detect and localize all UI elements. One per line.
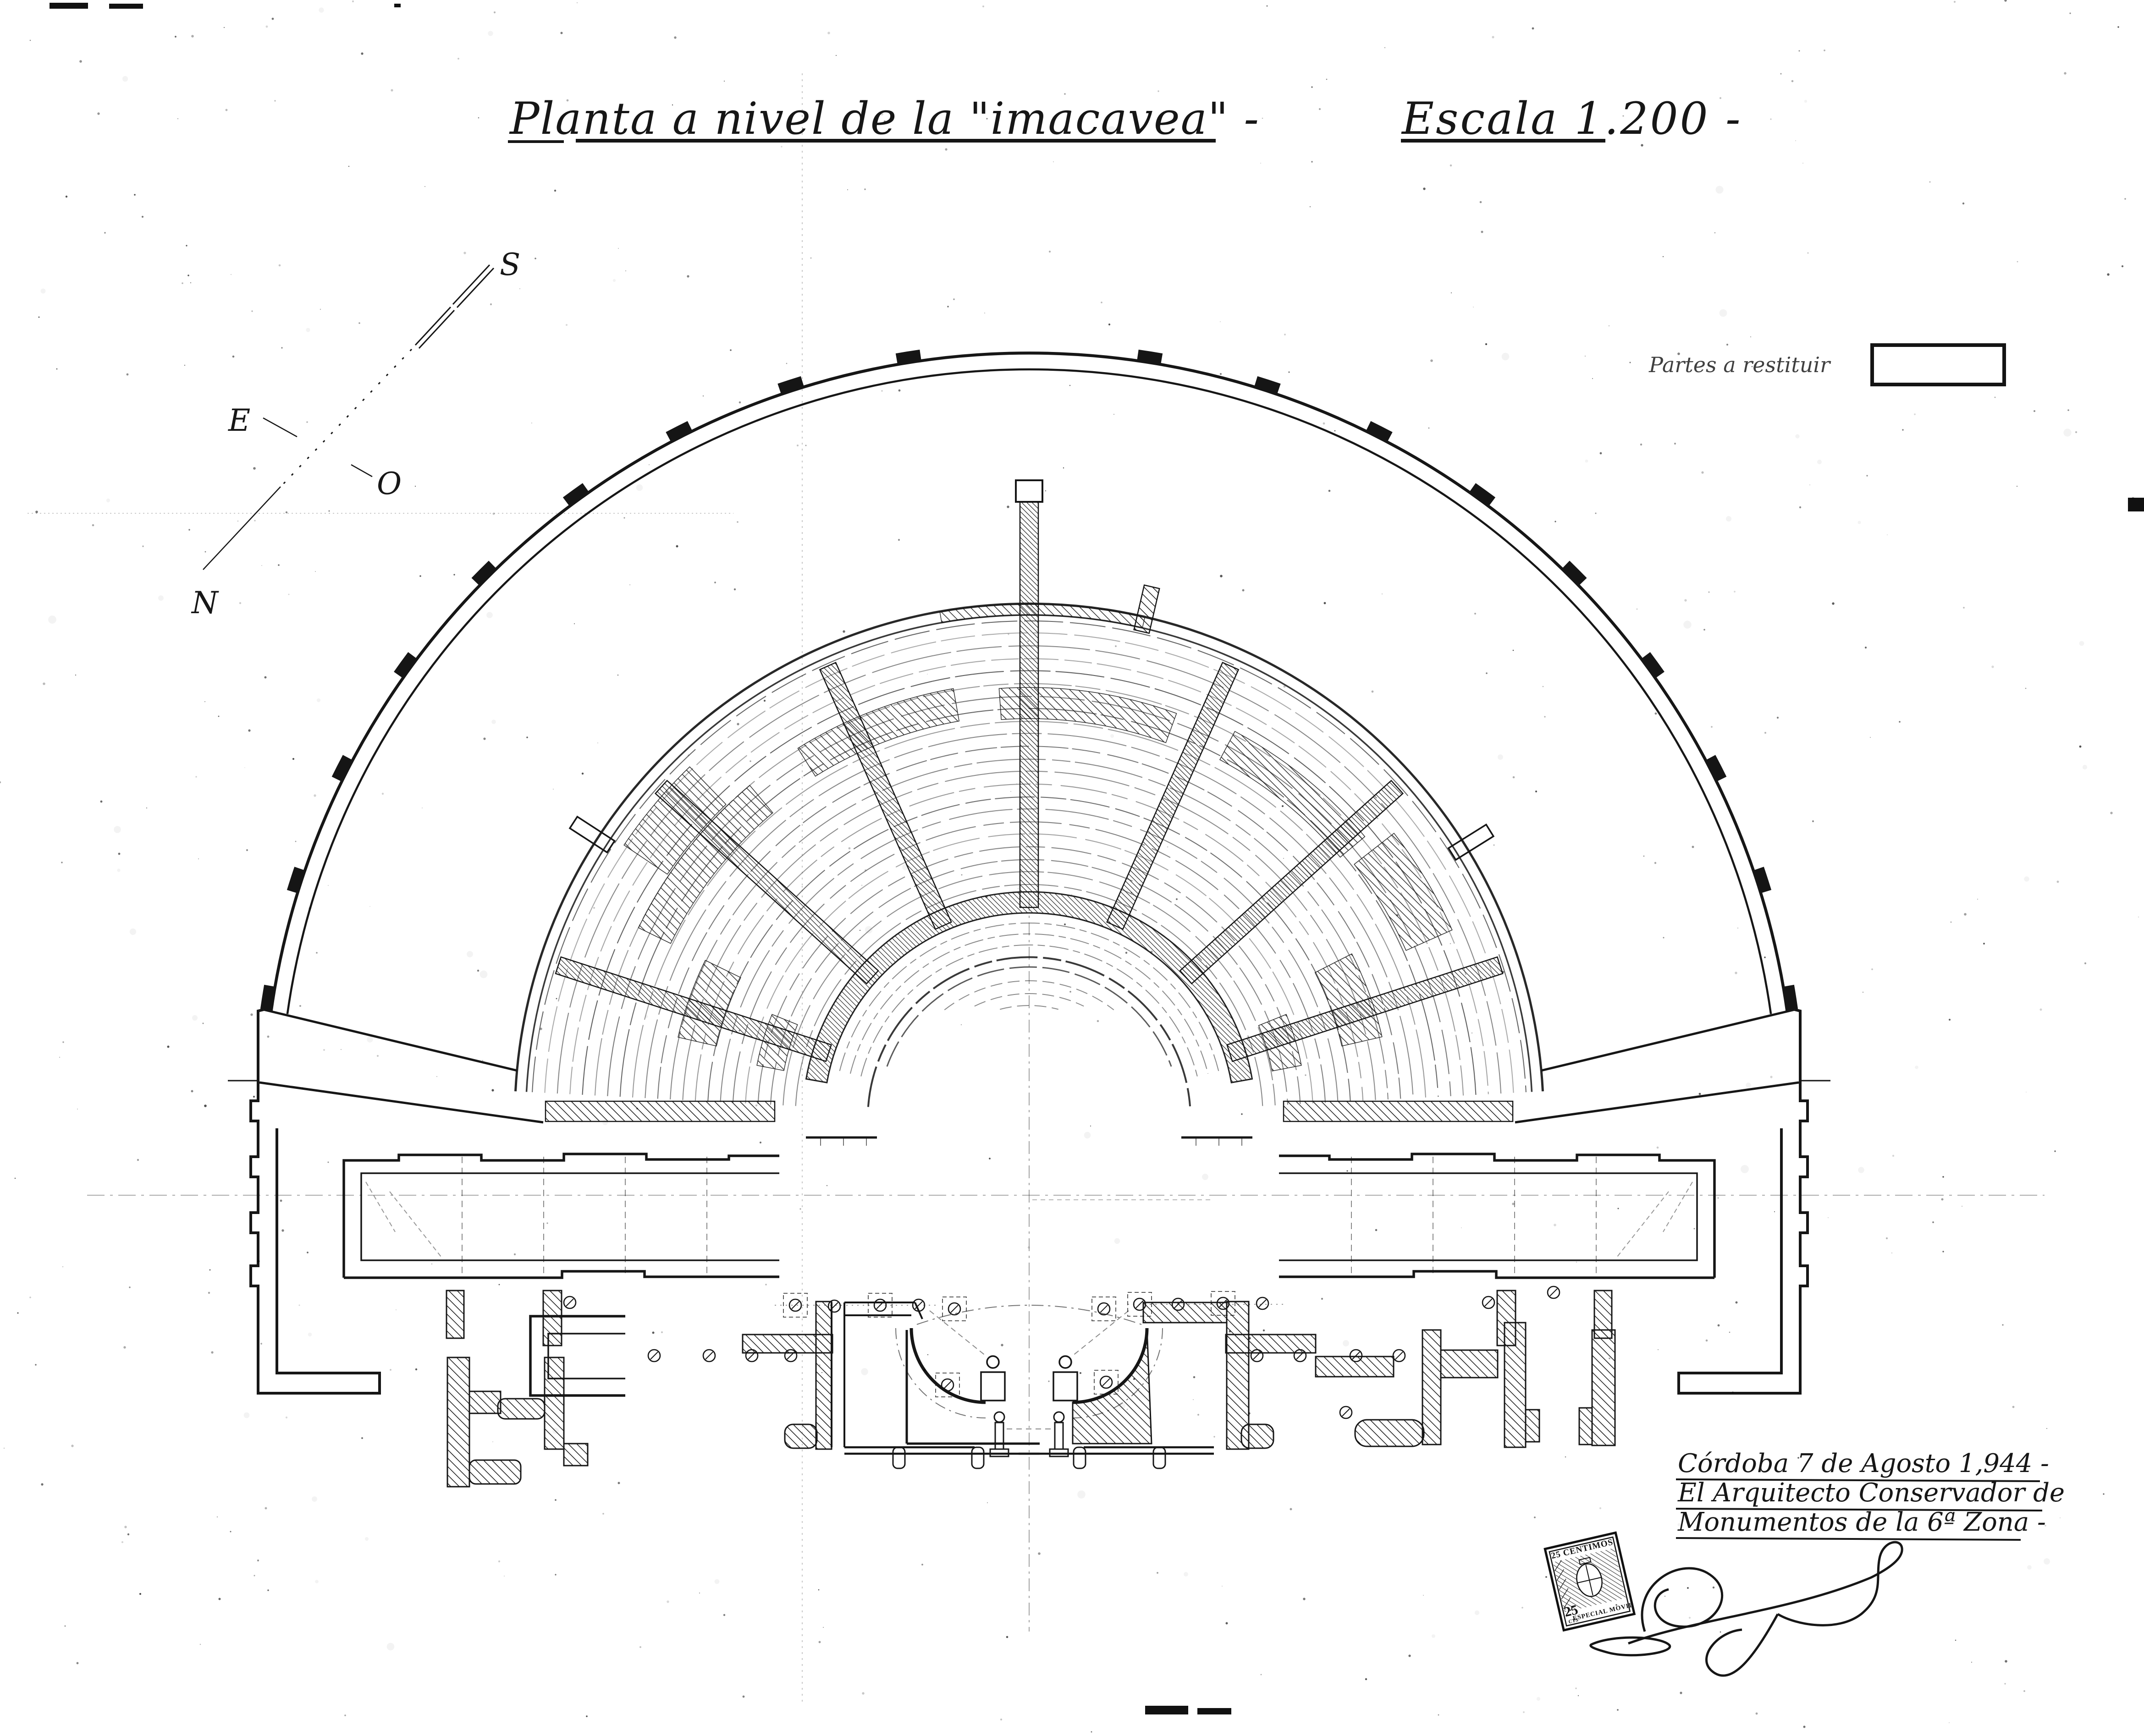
paper-speckle [864,188,866,190]
paper-blemish [865,926,872,934]
paper-blemish [1726,516,1731,522]
paper-speckle [1063,467,1064,468]
paper-speckle [1718,1198,1719,1199]
paper-speckle [127,1533,129,1535]
paper-speckle [4,1448,5,1449]
paper-speckle [218,716,220,717]
exedra-wall-outline [832,1302,844,1447]
paper-blemish [306,328,310,332]
paper-speckle [823,1627,824,1628]
paper-speckle [323,1049,325,1051]
paper-speckle [491,1089,494,1091]
paper-speckle [1699,1093,1701,1095]
paper-speckle [799,1208,801,1209]
exedra-foot [972,1447,984,1468]
paper-speckle [540,1027,542,1030]
paper-speckle [797,445,799,446]
paper-speckle [1113,414,1114,415]
paper-speckle [1870,737,1871,738]
paper-speckle [599,847,600,848]
paper-speckle [1523,1711,1525,1713]
paper-speckle [191,1090,193,1093]
paper-blemish [1077,1490,1086,1499]
paper-speckle [860,930,860,931]
paper-speckle [248,729,250,731]
stage-wall-hatched [469,1391,501,1413]
stage-wall-hatched [1592,1330,1615,1445]
paper-speckle [1942,1251,1944,1252]
left-analemma-wall [259,1010,543,1122]
paper-speckle [2117,26,2119,27]
paper-speckle [1954,1,1956,3]
paper-speckle [1618,1208,1619,1209]
paper-speckle [1828,1217,1829,1218]
paper-speckle [123,1346,126,1348]
compass-north-label: N [191,585,219,621]
paper-speckle [821,1372,822,1373]
paper-speckle [2017,486,2017,487]
paper-speckle [1932,1221,1934,1223]
paper-speckle [1914,413,1916,415]
paper-speckle [190,282,191,283]
paper-speckle [203,1023,204,1024]
paper-speckle [1663,937,1664,939]
paper-speckle [1328,490,1331,492]
paper-speckle [396,1309,397,1310]
paper-speckle [35,1364,36,1365]
paper-speckle [1197,1414,1199,1416]
buttress-tab [260,985,276,1011]
versura-outline [344,1271,779,1278]
paper-speckle [714,582,716,583]
paper-speckle [195,776,197,777]
paper-speckle [1069,991,1071,993]
paper-speckle [478,117,480,119]
paper-speckle [1450,943,1451,945]
stage-wall-hatched [447,1357,469,1487]
paper-speckle [1609,1357,1610,1359]
paper-speckle [66,196,67,198]
paper-speckle [1576,1262,1577,1263]
paper-speckle [1955,1640,1957,1641]
paper-speckle [802,886,803,888]
paper-speckle [921,1564,923,1566]
column-base [944,1381,951,1389]
paper-speckle [1090,1126,1091,1126]
paper-speckle [1038,1552,1041,1555]
wing-pier [543,1291,562,1346]
paper-speckle [1797,1457,1799,1459]
paper-speckle [652,1332,655,1334]
paper-speckle [424,186,425,187]
paper-speckle [699,1593,700,1593]
paper-speckle [1736,1302,1738,1304]
paper-speckle [734,588,736,590]
title-underline-2 [508,140,564,143]
paper-speckle [617,675,619,676]
paper-blemish [158,595,164,601]
paper-speckle [257,1260,259,1262]
paper-speckle [618,248,619,249]
paper-speckle [1600,452,1602,455]
paper-speckle [2004,0,2006,2]
paper-speckle [1010,791,1011,792]
paper-speckle [104,232,105,233]
paper-speckle [1127,1409,1128,1410]
paper-speckle [561,32,563,34]
paper-speckle [1534,1516,1536,1518]
paper-speckle [1962,1206,1962,1207]
paper-speckle [1193,1376,1196,1379]
paper-speckle [1774,1211,1775,1212]
paper-speckle [593,907,595,909]
paper-speckle [819,1641,821,1643]
paper-speckle [1799,506,1801,508]
paper-speckle [1229,1330,1231,1333]
paper-speckle [1486,672,1488,674]
paper-speckle [453,574,455,575]
paper-speckle [2075,431,2077,433]
paper-speckle [687,275,689,277]
paper-speckle [1049,251,1051,253]
paper-speckle [217,1516,218,1517]
radial-stair-wall [1227,957,1503,1061]
paper-speckle [1193,1399,1194,1400]
paper-speckle [1513,776,1515,779]
buttress-tab [1705,755,1726,782]
buttress-tab [1469,483,1495,507]
paper-speckle [30,40,31,41]
paper-speckle [1891,1253,1892,1253]
stage-wall-hatched [785,1424,817,1448]
paper-speckle [237,521,238,522]
stage-wall-hatched [498,1399,545,1419]
paper-blemish [1084,1132,1091,1138]
paper-speckle [764,700,766,702]
paper-speckle [188,529,190,530]
paper-blemish [2027,1565,2032,1570]
paper-speckle [1226,1622,1228,1625]
paper-speckle [146,808,147,808]
paper-speckle [118,853,121,855]
paper-speckle [288,594,290,595]
paper-speckle [369,906,370,907]
paper-speckle [1319,108,1321,110]
paper-speckle [1689,1617,1691,1619]
paper-speckle [1311,161,1312,162]
paper-blemish [365,1537,369,1541]
column-base [1485,1299,1492,1306]
paper-speckle [1493,844,1495,846]
ruined-masonry-patch [1354,833,1452,950]
paper-speckle [1326,79,1328,80]
paper-speckle [344,1714,346,1716]
paper-speckle [1554,1224,1556,1226]
door-column-pedestal [981,1372,1005,1401]
paper-speckle [1578,1695,1579,1696]
paper-speckle [629,584,631,586]
paper-speckle [1461,1227,1462,1228]
stage-wall-hatched [1316,1357,1394,1377]
paper-speckle [1396,914,1399,917]
paper-speckle [1995,397,1996,398]
paper-speckle [1438,1714,1439,1716]
paper-speckle [847,189,848,190]
paper-speckle [1502,971,1504,973]
paper-speckle [1680,1692,1682,1694]
paper-speckle [457,58,459,60]
paper-speckle [1735,972,1737,974]
paper-blemish [2044,1558,2050,1565]
paper-speckle [986,118,987,119]
exedra-base-line [1019,1447,1214,1454]
buttress-tab [666,421,693,443]
paper-speckle [945,148,947,150]
central-column-shaft [1055,1423,1063,1449]
paper-speckle [1167,846,1168,848]
paper-speckle [254,520,256,522]
paper-speckle [209,1269,211,1271]
paper-speckle [121,1541,123,1543]
door-column [987,1356,999,1368]
paper-speckle [230,1531,231,1533]
paper-speckle [265,1507,267,1510]
paper-blemish [1346,818,1349,821]
paper-speckle [898,539,900,541]
paper-speckle [1780,73,1782,75]
paper-speckle [309,907,311,909]
scan-artifact-mark [109,4,143,9]
central-column [1054,1412,1064,1422]
paper-speckle [261,565,262,566]
paper-speckle [1543,686,1544,687]
architect-signature [1591,1542,1902,1676]
paper-speckle [92,524,94,527]
stage-wall-hatched [469,1460,521,1484]
paper-speckle [827,32,830,34]
paper-blemish [480,971,488,978]
paper-speckle [1657,1147,1659,1149]
paper-speckle [862,1692,864,1694]
paper-speckle [292,758,294,760]
paper-speckle [204,1104,207,1107]
paper-speckle [1220,373,1222,375]
paper-speckle [127,374,129,376]
paper-speckle [184,365,185,366]
paper-speckle [1263,1329,1265,1331]
paper-blemish [1739,835,1744,841]
paper-speckle [2069,12,2071,14]
paper-speckle [1048,1380,1049,1382]
paper-speckle [819,1364,820,1366]
paper-speckle [134,194,136,196]
paper-speckle [250,1013,253,1016]
paper-blemish [315,1580,319,1583]
paper-speckle [1071,894,1072,895]
paper-speckle [2026,1092,2027,1093]
paper-speckle [1288,371,1290,373]
paper-blemish [122,76,128,82]
scan-artifact-mark [394,4,401,7]
paper-speckle [1832,602,1834,604]
paper-speckle [175,36,176,38]
paper-speckle [191,612,192,613]
paper-speckle [436,1076,437,1077]
paper-speckle [1720,97,1721,99]
paper-speckle [1714,232,1715,233]
paper-speckle [1347,1170,1348,1172]
paper-speckle [1430,359,1433,362]
paper-speckle [1028,1247,1030,1249]
paper-speckle [1115,645,1117,647]
scanned-drawing: Planta a nivel de la "imacavea" - Escala… [0,0,2144,1736]
paper-speckle [1451,292,1452,293]
paper-speckle [1064,93,1066,95]
paper-speckle [77,1109,78,1110]
paper-blemish [467,951,473,957]
paper-speckle [555,1574,556,1575]
exedra-foot [893,1447,905,1468]
paper-speckle [514,1253,516,1255]
diagonal-guide [366,1182,441,1257]
paper-blemish [308,1333,312,1336]
paper-speckle [882,390,883,392]
scan-artifact-mark [50,3,88,9]
paper-speckle [636,1108,638,1110]
paper-speckle [574,623,575,624]
seating-termination-strip [546,1101,775,1121]
paper-speckle [1150,950,1152,953]
paper-speckle [836,55,837,56]
paper-speckle [688,754,689,756]
paper-speckle [546,1222,548,1224]
paper-speckle [279,264,281,267]
paper-speckle [2057,881,2059,883]
column-base [566,1299,573,1306]
paper-speckle [1595,513,1597,514]
paper-speckle [1615,1604,1617,1605]
paper-blemish [602,1120,608,1125]
paper-speckle [781,146,782,147]
paper-speckle [62,1266,64,1268]
stage-building-fragments [447,1302,1615,1487]
paper-speckle [246,849,248,851]
paper-speckle [827,1185,827,1186]
column-base [1259,1300,1266,1307]
paper-speckle [1640,444,1642,445]
paper-blemish [192,1015,198,1021]
paper-blemish [1683,621,1691,628]
paper-speckle [618,1482,620,1484]
paper-speckle [391,89,393,91]
paper-blemish [1498,754,1503,760]
paper-speckle [566,324,568,326]
paper-speckle [984,313,985,313]
paper-speckle [881,113,883,115]
perimeter-bracket-wall [251,1010,380,1393]
paper-blemish [1720,309,1727,317]
paper-speckle [253,467,256,470]
paper-blemish [1202,1174,1208,1180]
paper-speckle [730,349,732,351]
paper-speckle [800,1006,801,1007]
paper-speckle [1290,1508,1292,1511]
paper-speckle [1282,805,1284,807]
stage-wall-hatched [1526,1410,1539,1442]
paper-speckle [1964,913,1967,916]
paper-speckle [567,99,569,102]
paper-speckle [142,545,144,547]
paper-blemish [1387,1000,1394,1007]
paper-speckle [1480,201,1482,203]
paper-speckle [265,676,267,679]
exedra-foot [1074,1447,1086,1468]
paper-speckle [737,723,739,725]
column-base [1550,1289,1557,1296]
paper-speckle [266,26,268,28]
paper-speckle [625,270,626,271]
paper-blemish [130,928,136,935]
paper-speckle [1729,1332,1731,1333]
paper-speckle [1585,356,1586,357]
paper-speckle [281,347,282,348]
paper-blemish [486,612,493,618]
paper-speckle [1513,650,1514,651]
paper-speckle [1248,1412,1250,1414]
document-page: Planta a nivel de la "imacavea" - Escala… [0,0,2144,1736]
paper-speckle [1812,820,1814,822]
paper-speckle [1097,1020,1099,1022]
paper-speckle [1701,471,1703,473]
paper-speckle [1637,609,1638,610]
paper-speckle [1734,591,1736,593]
paper-speckle [1474,613,1476,615]
paper-speckle [1951,922,1952,923]
paper-speckle [531,423,532,423]
paper-speckle [1687,1587,1689,1589]
compass-west-label: O [377,466,402,501]
stage-wall-hatched [1241,1424,1273,1448]
paper-speckle [1565,1456,1566,1458]
paper-speckle [1592,378,1593,379]
paper-speckle [777,1067,778,1068]
column-base [650,1352,658,1359]
paper-speckle [1692,846,1694,848]
paper-speckle [1713,1587,1714,1588]
paper-speckle [961,1024,962,1025]
column-base [1100,1305,1108,1313]
paper-speckle [358,322,360,324]
paper-speckle [295,841,297,842]
paper-blemish [1585,460,1588,463]
paper-blemish [312,1496,317,1502]
paper-speckle [39,317,40,318]
paper-speckle [1283,858,1284,859]
paper-speckle [2084,962,2086,964]
paper-speckle [872,742,874,744]
paper-speckle [41,1483,43,1485]
paper-speckle [1892,1155,1894,1157]
paper-blemish [645,1015,648,1018]
paper-speckle [554,190,556,192]
versura-inner-wall [361,1173,779,1260]
paper-speckle [286,511,287,513]
paper-speckle [2025,688,2027,689]
buttress-tab [332,755,353,782]
column-base [705,1352,713,1359]
paper-speckle [927,1354,928,1355]
compass-south-label: S [500,247,520,282]
